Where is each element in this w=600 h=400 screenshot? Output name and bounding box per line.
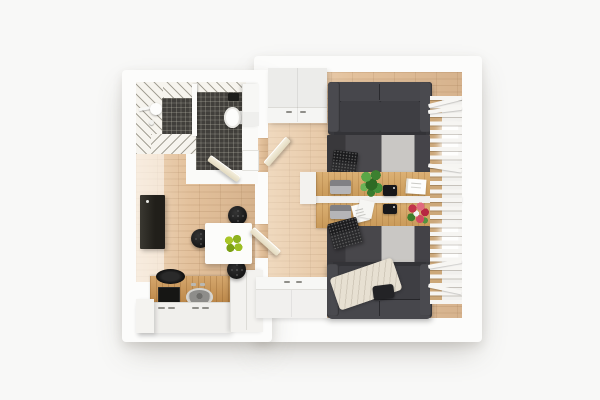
sideboard-handle [284, 281, 290, 283]
wardrobe-handle [286, 111, 292, 113]
bathroom-tile-floor-main [196, 92, 242, 170]
shower-knob [149, 120, 154, 125]
curtain-slats [430, 96, 462, 304]
flower-bouquet [405, 201, 430, 226]
sofa-top [328, 82, 432, 135]
cabinet-end-panel [136, 299, 154, 333]
tall-unit-seam [246, 272, 247, 330]
cabinet-handle [202, 307, 209, 309]
sofa-bottom [327, 262, 432, 318]
memo-board [406, 178, 427, 194]
black-tablet [383, 185, 397, 196]
sideboard-seam [291, 290, 292, 317]
black-pillow [372, 284, 395, 300]
black-tablet [383, 204, 397, 214]
vanity-cabinet [242, 84, 259, 126]
sofa-armrest [328, 82, 340, 132]
sofa-cushion [340, 101, 381, 132]
faucet-handle [200, 283, 205, 286]
washer [242, 150, 259, 171]
cabinet-handle [168, 307, 175, 309]
bathroom-accessory-box [228, 93, 239, 101]
sofa-backrest [330, 82, 430, 102]
sideboard-top [256, 277, 327, 290]
sideboard-handle [296, 281, 302, 283]
cooktop [158, 287, 180, 303]
bathroom-striped-wall-lower [151, 134, 196, 154]
cabinet-handle [192, 307, 199, 309]
wardrobe-seam [297, 68, 298, 122]
sofa-cushion [380, 101, 420, 132]
fridge-black [140, 195, 165, 249]
green-apples-bowl [224, 235, 244, 253]
potted-plant [359, 169, 383, 197]
fridge-handle [146, 200, 149, 203]
shower-head-icon [150, 103, 162, 115]
toilet [224, 107, 241, 128]
cabinet-handle [158, 307, 165, 309]
floor-plan-render [0, 0, 600, 400]
shower-partition-wall [192, 84, 197, 136]
desk-end-panel [300, 172, 316, 204]
sofa-seam [379, 301, 380, 316]
faucet-handle [191, 283, 196, 286]
silver-laptop [330, 180, 351, 194]
sofa-seam [379, 84, 380, 100]
black-pan [156, 269, 185, 284]
wardrobe-handle [300, 111, 306, 113]
bathroom-tile-floor-shower [162, 98, 193, 135]
silver-laptop [330, 205, 351, 219]
